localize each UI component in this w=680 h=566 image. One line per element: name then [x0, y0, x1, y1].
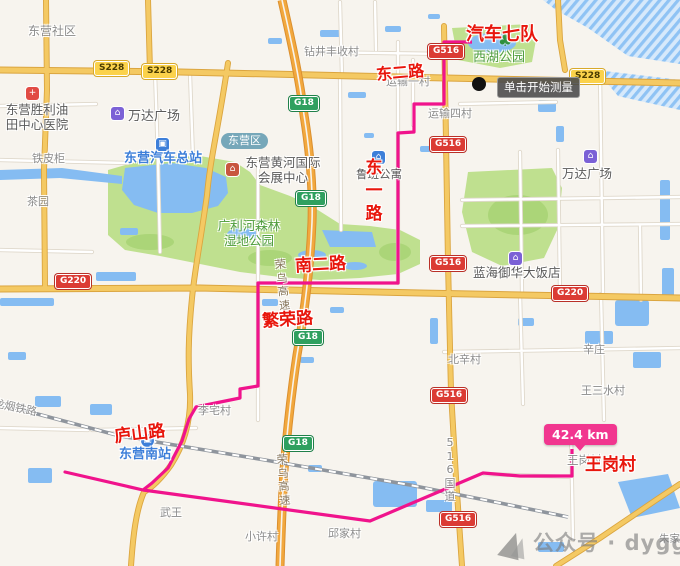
route-street-label: 繁荣路	[261, 303, 314, 331]
poi-label: 东营黄河国际会展中心	[243, 156, 323, 186]
poi-label: 运输四村	[428, 108, 472, 121]
bus-station-icon: ▣	[156, 138, 169, 151]
road-badge-s228: S228	[142, 64, 177, 79]
road-badge-g516: G516	[430, 137, 466, 152]
route-end-label: 王岗村	[585, 450, 636, 475]
hospital-icon: +	[26, 87, 39, 100]
road-badge-g18: G18	[289, 96, 319, 111]
district-badge-dongyingqu: 东营区	[221, 133, 268, 149]
poi-label: 小许村	[245, 531, 278, 544]
road-name-g516-national-road: 516国道	[444, 436, 456, 504]
poi-label: 王三水村	[581, 385, 625, 398]
measure-tooltip: 单击开始测量	[497, 77, 580, 98]
poi-label: 辛庄	[583, 344, 605, 357]
road-badge-s228: S228	[94, 61, 129, 76]
mall-icon: ⌂	[111, 107, 124, 120]
hotel-icon: ⌂	[509, 252, 522, 265]
road-badge-g18: G18	[293, 330, 323, 345]
poi-label: 钻井丰收村	[304, 46, 359, 59]
route-street-label: 南二路	[294, 249, 346, 277]
watermark-text: 公众号 · dyggjt	[533, 527, 680, 557]
poi-label: 邱家村	[328, 528, 361, 541]
poi-label: 西湖公园	[473, 50, 525, 65]
mall-icon: ⌂	[584, 150, 597, 163]
poi-label: 茶园	[27, 196, 49, 209]
road-badge-g220: G220	[55, 274, 91, 289]
poi-label: 李宅村	[198, 405, 231, 418]
poi-label: 铁皮柜	[32, 153, 65, 166]
distance-callout[interactable]: 42.4 km	[544, 424, 617, 445]
measure-cursor-dot	[472, 77, 486, 91]
poi-label: 东营汽车总站	[124, 151, 202, 166]
map-canvas[interactable]: 荣乌高速 荣乌高速 516国道 龙烟铁路 S228 S228 S228 G516…	[0, 0, 680, 566]
expo-center-icon: ⌂	[226, 163, 239, 176]
poi-label: 东营胜利油田中心医院	[0, 103, 74, 133]
road-badge-g516: G516	[440, 512, 476, 527]
poi-label: 武王	[160, 507, 182, 520]
poi-label: 东营南站	[119, 447, 171, 462]
poi-label: 万达广场	[128, 109, 180, 124]
road-badge-g18: G18	[283, 436, 313, 451]
poi-label: 广利河森林湿地公园	[212, 219, 286, 249]
poi-label: 北辛村	[448, 354, 481, 367]
route-start-label: 汽车七队	[466, 20, 538, 46]
road-badge-g516: G516	[431, 388, 467, 403]
poi-label: 蓝海御华大饭店	[473, 266, 561, 281]
poi-label: 东营社区	[28, 24, 76, 38]
route-street-label: 东二路	[375, 57, 425, 85]
road-badge-g220: G220	[552, 286, 588, 301]
road-badge-g516: G516	[430, 256, 466, 271]
route-street-label: 东一路	[364, 157, 384, 226]
watermark-logo-icon	[496, 526, 532, 562]
road-badge-g18: G18	[296, 191, 326, 206]
poi-label: 万达广场	[562, 167, 612, 182]
road-badge-g516: G516	[428, 44, 464, 59]
